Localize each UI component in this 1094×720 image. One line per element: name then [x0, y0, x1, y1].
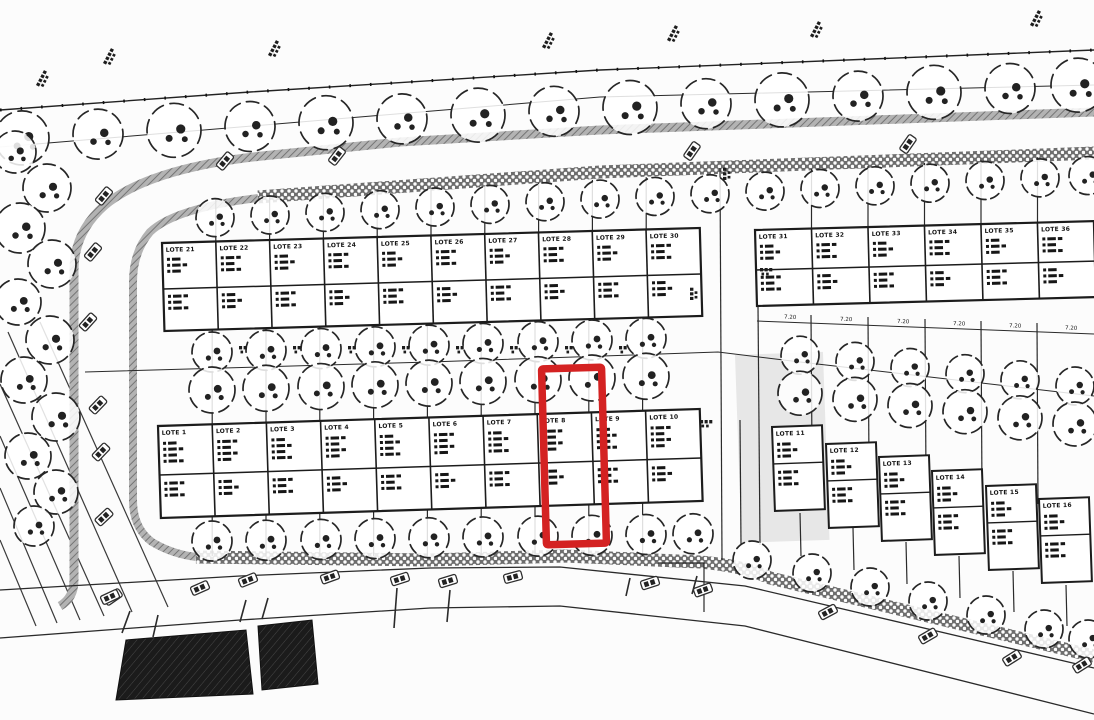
lot-line	[959, 556, 960, 598]
dimension-label-mark	[542, 32, 556, 50]
lot-label: LOTE 25	[381, 240, 410, 248]
lot-label: LOTE 16	[1043, 502, 1072, 510]
road-label-mark	[503, 570, 523, 583]
tree-icon	[518, 322, 558, 362]
lot-block: LOTE 16	[1039, 497, 1092, 583]
tree-icon	[1021, 159, 1059, 197]
lot-block: LOTE 21LOTE 22LOTE 23LOTE 24LOTE 25LOTE …	[162, 228, 702, 331]
driveway-tick	[394, 588, 397, 628]
dimension-label-mark	[700, 420, 712, 427]
tree-icon	[196, 199, 234, 237]
driveway-tick	[626, 578, 630, 596]
tree-icon	[891, 349, 929, 387]
road-label-mark	[818, 604, 838, 620]
tree-icon	[1051, 58, 1094, 112]
lot-line	[853, 528, 854, 570]
tree-icon	[733, 541, 771, 579]
tree-icon	[301, 329, 341, 369]
dimension-label-mark	[565, 346, 573, 353]
tree-icon	[243, 365, 289, 411]
road-label-mark	[238, 572, 258, 587]
road-label-mark	[390, 572, 410, 586]
tree-icon	[985, 64, 1035, 114]
tree-icon	[28, 240, 76, 288]
lot-width-dimension: 7.20	[1009, 323, 1022, 329]
tree-icon	[306, 193, 344, 231]
tree-icon	[1056, 367, 1094, 405]
tree-icon	[626, 318, 666, 358]
tree-icon	[856, 167, 894, 205]
lot-line	[906, 542, 907, 584]
dimension-label-mark	[667, 25, 681, 43]
tree-icon	[691, 175, 729, 213]
lot-label: LOTE 30	[650, 233, 679, 241]
lot-width-dimension: 7.20	[840, 317, 853, 323]
tree-icon	[377, 94, 427, 144]
road-label-mark	[84, 242, 102, 262]
tree-icon	[0, 131, 36, 173]
lot-block: LOTE 31LOTE 32LOTE 33LOTE 34LOTE 35LOTE …	[755, 221, 1094, 306]
tree-icon	[851, 568, 889, 606]
tree-icon	[246, 330, 286, 370]
tree-icon	[778, 371, 822, 415]
tree-icon	[1069, 157, 1094, 195]
corridor-line	[720, 168, 722, 560]
tree-icon	[529, 86, 579, 136]
tree-icon	[1025, 610, 1063, 648]
tree-icon	[907, 65, 961, 119]
dimension-label-mark	[293, 346, 301, 353]
lot-label: LOTE 1	[162, 429, 187, 437]
tree-icon	[581, 180, 619, 218]
driveway-tick	[262, 598, 268, 619]
dimension-label-mark	[268, 40, 282, 58]
tree-icon	[246, 520, 286, 560]
road-label-mark	[438, 574, 458, 588]
lot-label: LOTE 15	[990, 489, 1019, 497]
tree-icon	[409, 518, 449, 558]
lot-label: LOTE 13	[883, 460, 912, 468]
tree-icon	[225, 102, 275, 152]
tree-icon	[967, 596, 1005, 634]
dimension-label-mark	[456, 346, 464, 353]
road-label-mark	[1072, 656, 1092, 673]
tree-icon	[526, 183, 564, 221]
lot-label: LOTE 10	[649, 414, 678, 422]
building-footprint	[116, 630, 253, 700]
tree-icon	[569, 355, 615, 401]
tree-icon	[515, 357, 561, 403]
tree-icon	[406, 360, 452, 406]
tree-icon	[189, 367, 235, 413]
tree-icon	[966, 162, 1004, 200]
driveway-tick	[122, 611, 130, 633]
tree-icon	[471, 185, 509, 223]
road-label-mark	[1002, 649, 1022, 666]
dimension-label-mark	[402, 346, 410, 353]
tree-icon	[23, 164, 71, 212]
tree-icon	[26, 316, 74, 364]
lot-label: LOTE 9	[595, 415, 620, 423]
lot-block: LOTE 14	[932, 469, 985, 555]
lot-label: LOTE 4	[324, 424, 349, 432]
tree-icon	[755, 73, 809, 127]
lot-label: LOTE 34	[928, 229, 957, 237]
lot-label: LOTE 27	[488, 237, 517, 245]
tree-icon	[888, 384, 932, 428]
tree-icon	[623, 353, 669, 399]
tree-icon	[1053, 402, 1094, 446]
tree-icon	[793, 554, 831, 592]
lot-label: LOTE 28	[542, 236, 571, 244]
dimension-label-mark	[810, 21, 824, 39]
road-label-mark	[94, 508, 113, 527]
road-label-mark	[683, 141, 701, 161]
road-label-mark	[216, 151, 234, 171]
tree-icon	[911, 164, 949, 202]
driveway-tick	[447, 590, 450, 622]
tree-icon	[781, 336, 819, 374]
tree-icon	[192, 521, 232, 561]
dimension-label-mark	[103, 48, 117, 66]
lot-label: LOTE 35	[985, 227, 1014, 235]
lot-label: LOTE 2	[216, 427, 241, 435]
lot-label: LOTE 12	[830, 447, 859, 455]
lot-label: LOTE 36	[1041, 226, 1070, 234]
lot-block: LOTE 12	[826, 442, 879, 528]
tree-icon	[5, 433, 51, 479]
lot-width-dimension: 7.20	[897, 319, 910, 325]
tree-icon	[251, 196, 289, 234]
lot-width-dimension: 7.20	[953, 321, 966, 327]
tree-icon	[636, 177, 674, 215]
road-label-mark	[79, 312, 98, 331]
tree-icon	[603, 81, 657, 135]
site-plan-drawing: LOTE 21LOTE 22LOTE 23LOTE 24LOTE 25LOTE …	[0, 0, 1094, 720]
tree-icon	[409, 325, 449, 365]
tree-icon	[352, 362, 398, 408]
tree-icon	[463, 517, 503, 557]
tree-icon	[836, 342, 874, 380]
road-label-mark	[92, 442, 111, 461]
tree-icon	[14, 506, 54, 546]
tree-icon	[298, 364, 344, 410]
tree-icon	[147, 103, 201, 157]
tree-icon	[460, 358, 506, 404]
lot-block: LOTE 13	[879, 455, 932, 541]
tree-icon	[833, 377, 877, 421]
building-footprint	[258, 620, 318, 690]
lot-block: LOTE 11	[772, 425, 825, 511]
lot-label: LOTE 7	[487, 419, 512, 427]
lot-width-dimension: 7.20	[1065, 325, 1078, 331]
lot-label: LOTE 33	[872, 230, 901, 238]
lot-label: LOTE 29	[596, 234, 625, 242]
tree-icon	[0, 279, 41, 325]
lot-width-dimension: 7.20	[784, 315, 797, 321]
tree-icon	[681, 79, 731, 129]
site-plan-page: LOTE 21LOTE 22LOTE 23LOTE 24LOTE 25LOTE …	[0, 0, 1094, 720]
lot-label: LOTE 21	[166, 246, 195, 254]
dimension-label-mark	[1030, 10, 1044, 28]
dimension-label-mark	[348, 346, 356, 353]
tree-icon	[463, 323, 503, 363]
lot-line	[1066, 585, 1067, 626]
dimension-label-mark	[36, 70, 50, 88]
lot-label: LOTE 3	[270, 426, 295, 434]
tree-icon	[1001, 361, 1039, 399]
tree-icon	[943, 390, 987, 434]
lot-label: LOTE 5	[378, 422, 403, 430]
lot-label: LOTE 22	[219, 245, 248, 253]
tree-icon	[299, 96, 353, 150]
driveway-tick	[240, 600, 246, 622]
lot-label: LOTE 23	[273, 243, 302, 251]
tree-icon	[355, 519, 395, 559]
tree-icon	[73, 109, 123, 159]
tree-icon	[301, 519, 341, 559]
road-label-mark	[89, 395, 108, 414]
dimension-label-mark	[619, 346, 627, 353]
lot-block: LOTE 1LOTE 2LOTE 3LOTE 4LOTE 5LOTE 6LOTE…	[158, 409, 703, 518]
road-label-mark	[899, 134, 917, 154]
tree-icon	[626, 514, 666, 554]
dimension-label-mark	[510, 346, 518, 353]
tree-icon	[909, 582, 947, 620]
road-label-mark	[918, 628, 938, 645]
road-label-mark	[100, 589, 120, 605]
tree-icon	[946, 355, 984, 393]
tree-icon	[801, 169, 839, 207]
road-label-mark	[693, 583, 713, 598]
lot-line	[1013, 571, 1014, 612]
tree-icon	[673, 514, 713, 554]
tree-icon	[833, 71, 883, 121]
tree-icon	[192, 332, 232, 372]
lot-label: LOTE 26	[435, 239, 464, 247]
tree-icon	[416, 188, 454, 226]
lot-label: LOTE 24	[327, 242, 356, 250]
lot-label: LOTE 32	[815, 232, 844, 240]
lot-block: LOTE 15	[986, 484, 1039, 570]
tree-icon	[32, 393, 80, 441]
field-hatch-line	[40, 322, 168, 607]
tree-icon	[572, 320, 612, 360]
tree-icon	[998, 396, 1042, 440]
field-hatch-line	[0, 540, 36, 626]
road-label-mark	[190, 580, 210, 596]
lot-label: LOTE 6	[432, 421, 457, 429]
road-label-mark	[640, 576, 660, 590]
lot-label: LOTE 11	[776, 430, 805, 438]
tree-icon	[518, 516, 558, 556]
tree-icon	[746, 172, 784, 210]
tree-icon	[451, 88, 505, 142]
tree-icon	[355, 327, 395, 367]
lot-label: LOTE 31	[759, 233, 788, 241]
tree-icon	[361, 191, 399, 229]
lot-label: LOTE 14	[936, 474, 965, 482]
tree-icon	[1, 357, 47, 403]
